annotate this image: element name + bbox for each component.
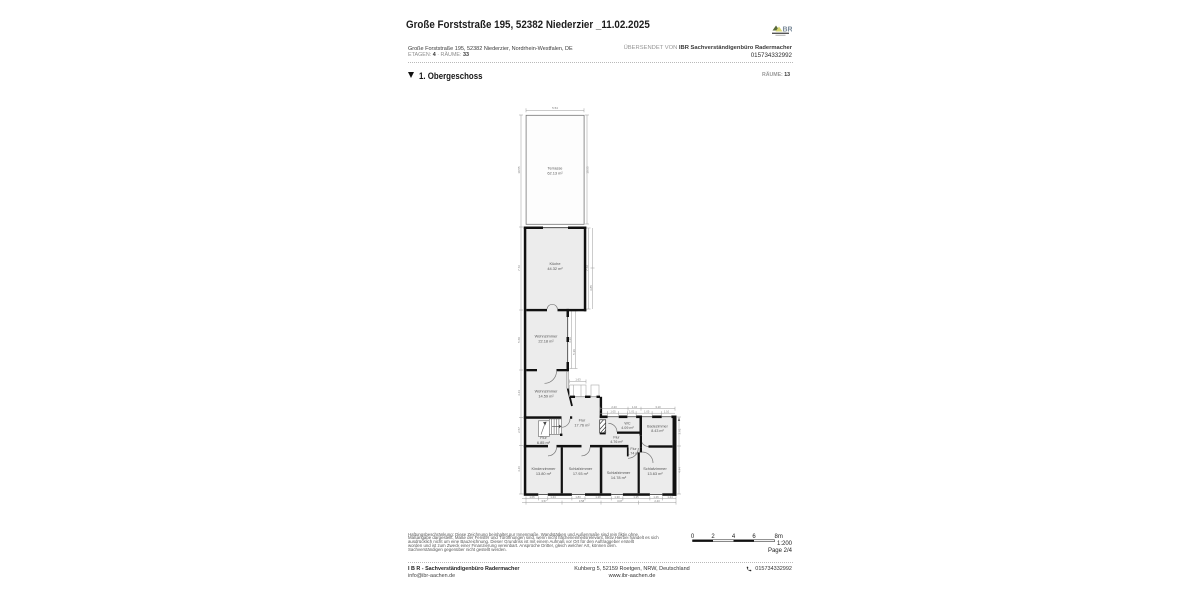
- svg-text:4.44: 4.44: [678, 467, 682, 473]
- svg-text:3.58: 3.58: [579, 499, 585, 503]
- svg-text:0: 0: [691, 534, 695, 540]
- svg-text:8m: 8m: [775, 534, 783, 540]
- svg-text:Badezimmer: Badezimmer: [647, 425, 668, 429]
- svg-text:4.76 m²: 4.76 m²: [610, 440, 623, 444]
- svg-text:1.06: 1.06: [529, 495, 535, 499]
- svg-text:14.59 m²: 14.59 m²: [538, 393, 554, 398]
- svg-text:10.55: 10.55: [517, 166, 521, 174]
- svg-text:13.63 m²: 13.63 m²: [647, 471, 663, 476]
- svg-text:1.63: 1.63: [575, 378, 581, 382]
- svg-text:3.07: 3.07: [617, 499, 623, 503]
- svg-text:2.43: 2.43: [654, 499, 660, 503]
- svg-text:1.05: 1.05: [644, 409, 650, 413]
- svg-text:1.29: 1.29: [595, 495, 601, 499]
- svg-text:2.57: 2.57: [517, 427, 521, 433]
- svg-text:10.55: 10.55: [586, 166, 590, 174]
- svg-text:3.57: 3.57: [541, 499, 547, 503]
- svg-text:1.05: 1.05: [610, 409, 616, 413]
- svg-text:WC: WC: [624, 422, 630, 426]
- svg-text:8.43 m²: 8.43 m²: [651, 429, 664, 433]
- svg-text:1.83: 1.83: [575, 495, 581, 499]
- svg-text:44.32 m²: 44.32 m²: [547, 266, 563, 271]
- svg-text:Flur: Flur: [613, 436, 620, 440]
- svg-text:5.60: 5.60: [517, 337, 521, 343]
- svg-text:17.76 m²: 17.76 m²: [574, 422, 590, 427]
- svg-text:6: 6: [752, 534, 756, 540]
- svg-text:1.10: 1.10: [632, 405, 638, 409]
- svg-text:62.13 m²: 62.13 m²: [547, 170, 563, 175]
- svg-text:4.43: 4.43: [517, 390, 521, 396]
- svg-text:7.72: 7.72: [517, 265, 521, 271]
- svg-text:22.18 m²: 22.18 m²: [538, 338, 554, 343]
- svg-text:1.25: 1.25: [633, 495, 639, 499]
- svg-text:5.39: 5.39: [572, 349, 576, 355]
- svg-text:1.24: 1.24: [667, 495, 673, 499]
- svg-text:4: 4: [732, 534, 736, 540]
- svg-text:2.23: 2.23: [611, 405, 617, 409]
- svg-text:3.85: 3.85: [589, 285, 593, 291]
- svg-text:14.78 m²: 14.78 m²: [611, 475, 627, 480]
- svg-text:1.26: 1.26: [653, 495, 659, 499]
- svg-text:4.09 m²: 4.09 m²: [621, 426, 634, 430]
- svg-text:1.30: 1.30: [614, 495, 620, 499]
- svg-text:17.93 m²: 17.93 m²: [573, 471, 589, 476]
- svg-text:2: 2: [711, 534, 715, 540]
- svg-text:5.54: 5.54: [552, 106, 558, 110]
- svg-text:BR: BR: [783, 27, 793, 34]
- svg-text:2.61: 2.61: [678, 428, 682, 434]
- svg-text:1.24: 1.24: [550, 495, 556, 499]
- svg-text:1.01: 1.01: [629, 409, 635, 413]
- svg-text:13.80 m²: 13.80 m²: [536, 471, 552, 476]
- svg-text:3.10: 3.10: [655, 405, 661, 409]
- svg-text:Flur: Flur: [630, 447, 637, 451]
- svg-text:4.46: 4.46: [517, 466, 521, 472]
- svg-text:6.85 m²: 6.85 m²: [537, 440, 551, 445]
- svg-text:1.10: 1.10: [664, 409, 670, 413]
